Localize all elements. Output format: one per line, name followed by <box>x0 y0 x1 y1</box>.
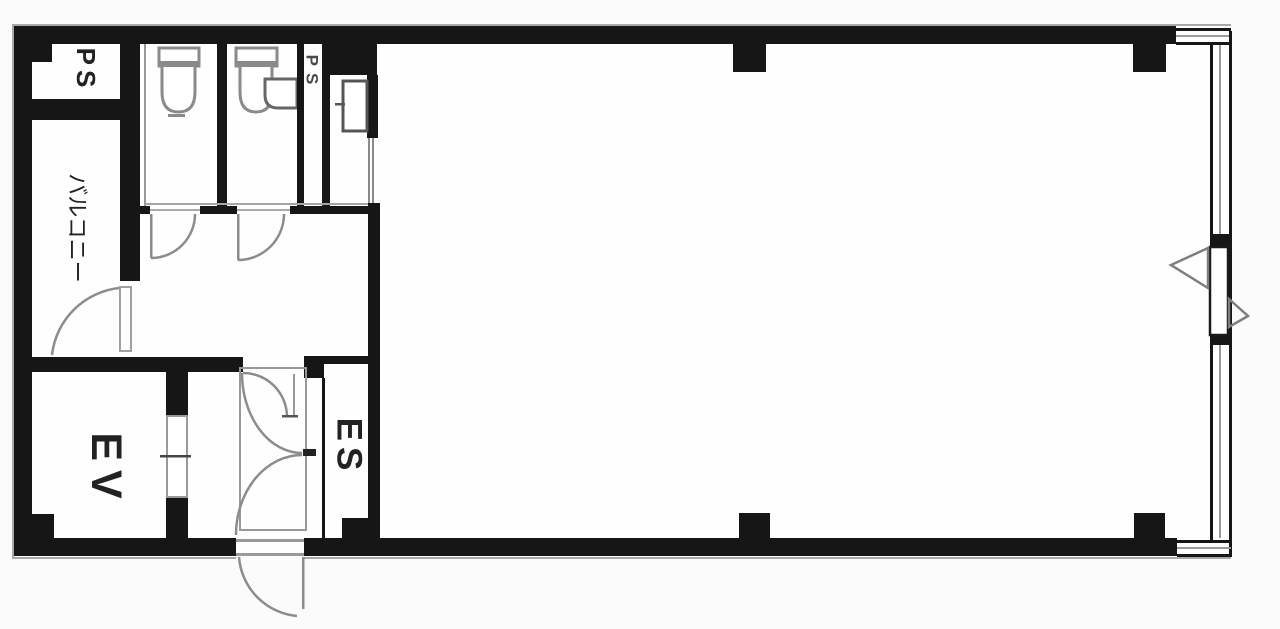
svg-text:ES: ES <box>330 418 369 477</box>
svg-text:バルコニー: バルコニー <box>65 173 90 283</box>
svg-text:PS: PS <box>71 48 101 93</box>
svg-text:EV: EV <box>82 432 130 507</box>
svg-text:PS: PS <box>303 55 322 92</box>
